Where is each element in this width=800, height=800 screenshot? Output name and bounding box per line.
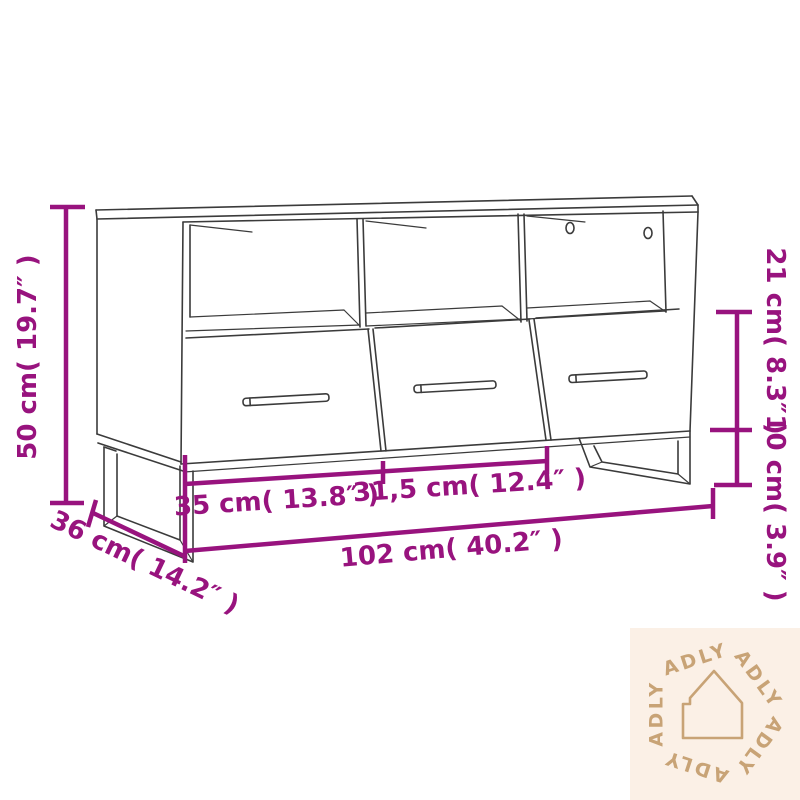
- height-dimension-label: 50 cm( 19.7″ ): [13, 254, 43, 459]
- total-width-dimension-label: 102 cm( 40.2″ ): [339, 524, 564, 573]
- drawer-handle: [414, 381, 496, 393]
- cabinet-right-leg: [579, 431, 690, 484]
- cabinet-top-panel: [96, 196, 698, 222]
- cabinet-open-compartments: [186, 211, 666, 331]
- depth-dimension-label: 36 cm( 14.2″ ): [45, 505, 243, 620]
- leg-height-dimension-label: 10 cm( 3.9″ ): [760, 414, 790, 601]
- product-dimension-diagram: 50 cm( 19.7″ ) 21 cm( 8.3″ ) 10 cm( 3.9″…: [0, 0, 800, 800]
- dimension-right-line: [710, 312, 752, 485]
- brand-watermark: ADLY ADLY ADLY ADLY ADLY: [630, 628, 800, 800]
- watermark-brand-text: ADLY: [646, 679, 668, 746]
- dimension-height-line: [50, 207, 85, 503]
- diagram-canvas: 50 cm( 19.7″ ) 21 cm( 8.3″ ) 10 cm( 3.9″…: [0, 0, 800, 800]
- left-section-width-dimension-label: 35 cm( 13.8″ ): [173, 480, 380, 523]
- compartment-height-dimension-label: 21 cm( 8.3″ ): [760, 247, 790, 434]
- drawer-handle: [569, 371, 647, 383]
- cabinet-front-frame: [181, 212, 698, 472]
- dimension-lines: [50, 207, 752, 563]
- cable-hole: [644, 228, 652, 239]
- drawer-handle: [243, 394, 329, 406]
- cabinet-drawers: [186, 309, 679, 451]
- dimension-labels: 50 cm( 19.7″ ) 21 cm( 8.3″ ) 10 cm( 3.9″…: [13, 247, 790, 620]
- cabinet-left-side-panel: [97, 219, 183, 471]
- cable-hole: [566, 223, 574, 234]
